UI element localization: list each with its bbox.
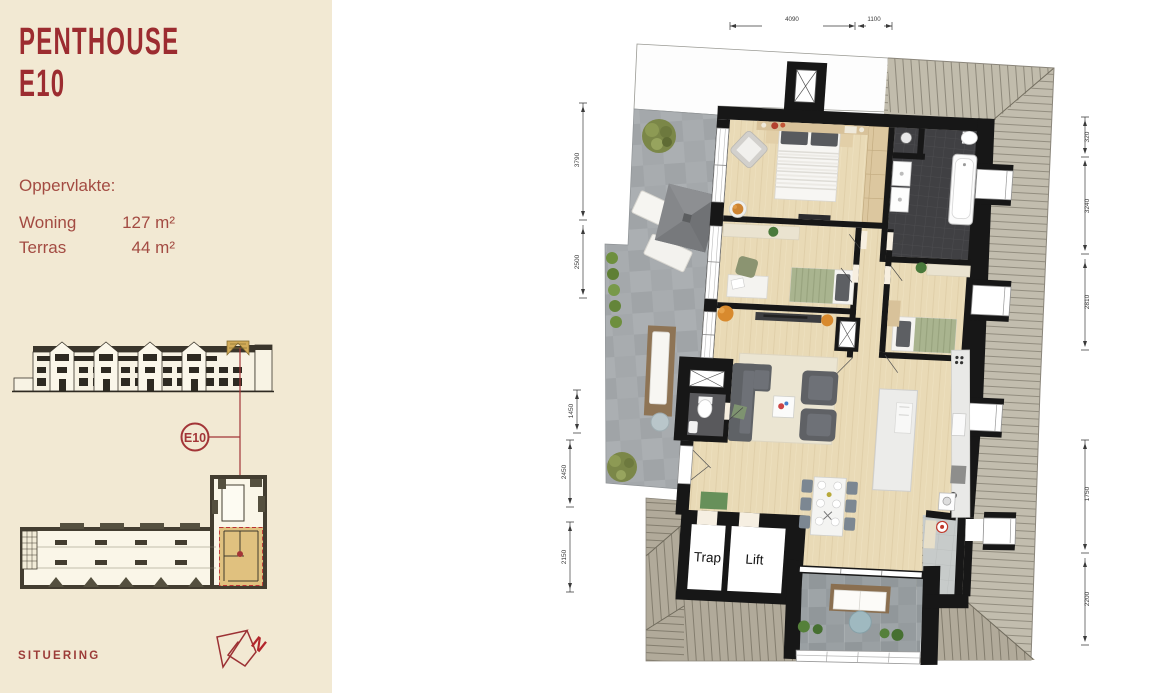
svg-text:2810: 2810 <box>1084 294 1091 309</box>
svg-text:Trap: Trap <box>693 549 721 565</box>
svg-text:2450: 2450 <box>561 464 568 479</box>
svg-text:4090: 4090 <box>785 16 799 23</box>
svg-text:3240: 3240 <box>1084 198 1091 213</box>
svg-text:Lift: Lift <box>745 552 764 568</box>
svg-text:3790: 3790 <box>574 152 581 167</box>
svg-text:320: 320 <box>1084 131 1091 142</box>
svg-text:2150: 2150 <box>561 549 568 564</box>
svg-text:2200: 2200 <box>1084 591 1091 606</box>
svg-text:1100: 1100 <box>867 16 881 23</box>
svg-text:1750: 1750 <box>1084 486 1091 501</box>
svg-text:2500: 2500 <box>574 254 581 269</box>
svg-text:1450: 1450 <box>568 403 575 418</box>
